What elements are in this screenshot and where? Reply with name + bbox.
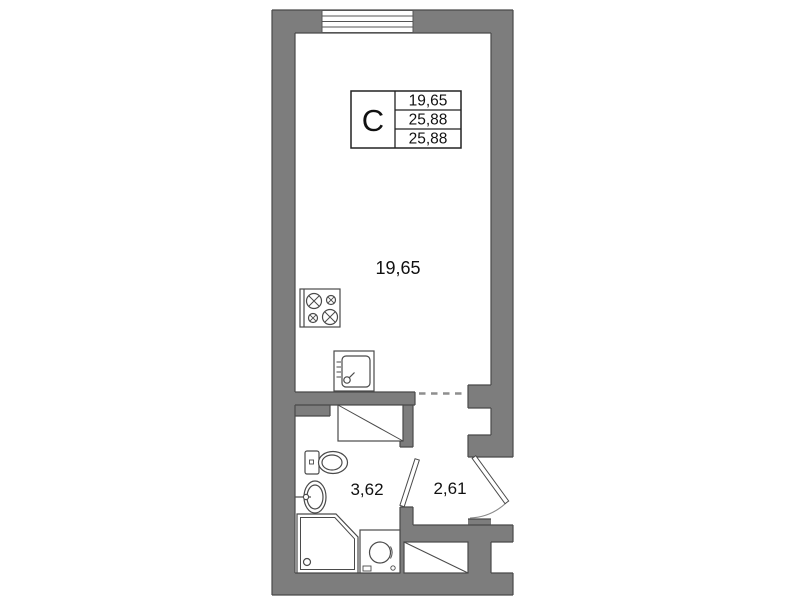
living-room-label: 19,65 (375, 258, 420, 278)
kitchen-sink-icon (334, 351, 374, 391)
area-value-row-1: 25,88 (409, 112, 448, 129)
closet-icon (404, 542, 468, 573)
area-value-row-0: 19,65 (409, 93, 448, 110)
wall-niche-upper (468, 385, 491, 408)
washbasin-icon (295, 481, 326, 513)
wall-room-bath-divider (295, 392, 415, 405)
bathroom-door (400, 459, 419, 507)
entrance-door-arc (470, 503, 506, 518)
stove-icon (300, 289, 340, 327)
washing-machine-icon (360, 530, 400, 573)
unit-type-cell: C (362, 103, 384, 138)
area-value-row-2: 25,88 (409, 131, 448, 148)
wall-right (491, 10, 513, 457)
shower-icon (297, 514, 358, 573)
window-icon (322, 11, 413, 33)
wall-niche-lower (468, 435, 491, 457)
hallway-label: 2,61 (433, 479, 466, 498)
floor-plan-page: C 19,65 25,88 25,88 (0, 0, 799, 600)
wall-left (272, 10, 295, 595)
toilet-icon (305, 451, 348, 474)
wall-vent-stub (295, 405, 330, 416)
area-info-table: C 19,65 25,88 25,88 (351, 91, 461, 148)
wall-hall-bottom (402, 525, 513, 542)
entrance-door (470, 456, 509, 518)
bathroom-label: 3,62 (350, 480, 383, 499)
wardrobe-icon (338, 405, 403, 441)
floor-plan: C 19,65 25,88 25,88 (0, 0, 799, 600)
